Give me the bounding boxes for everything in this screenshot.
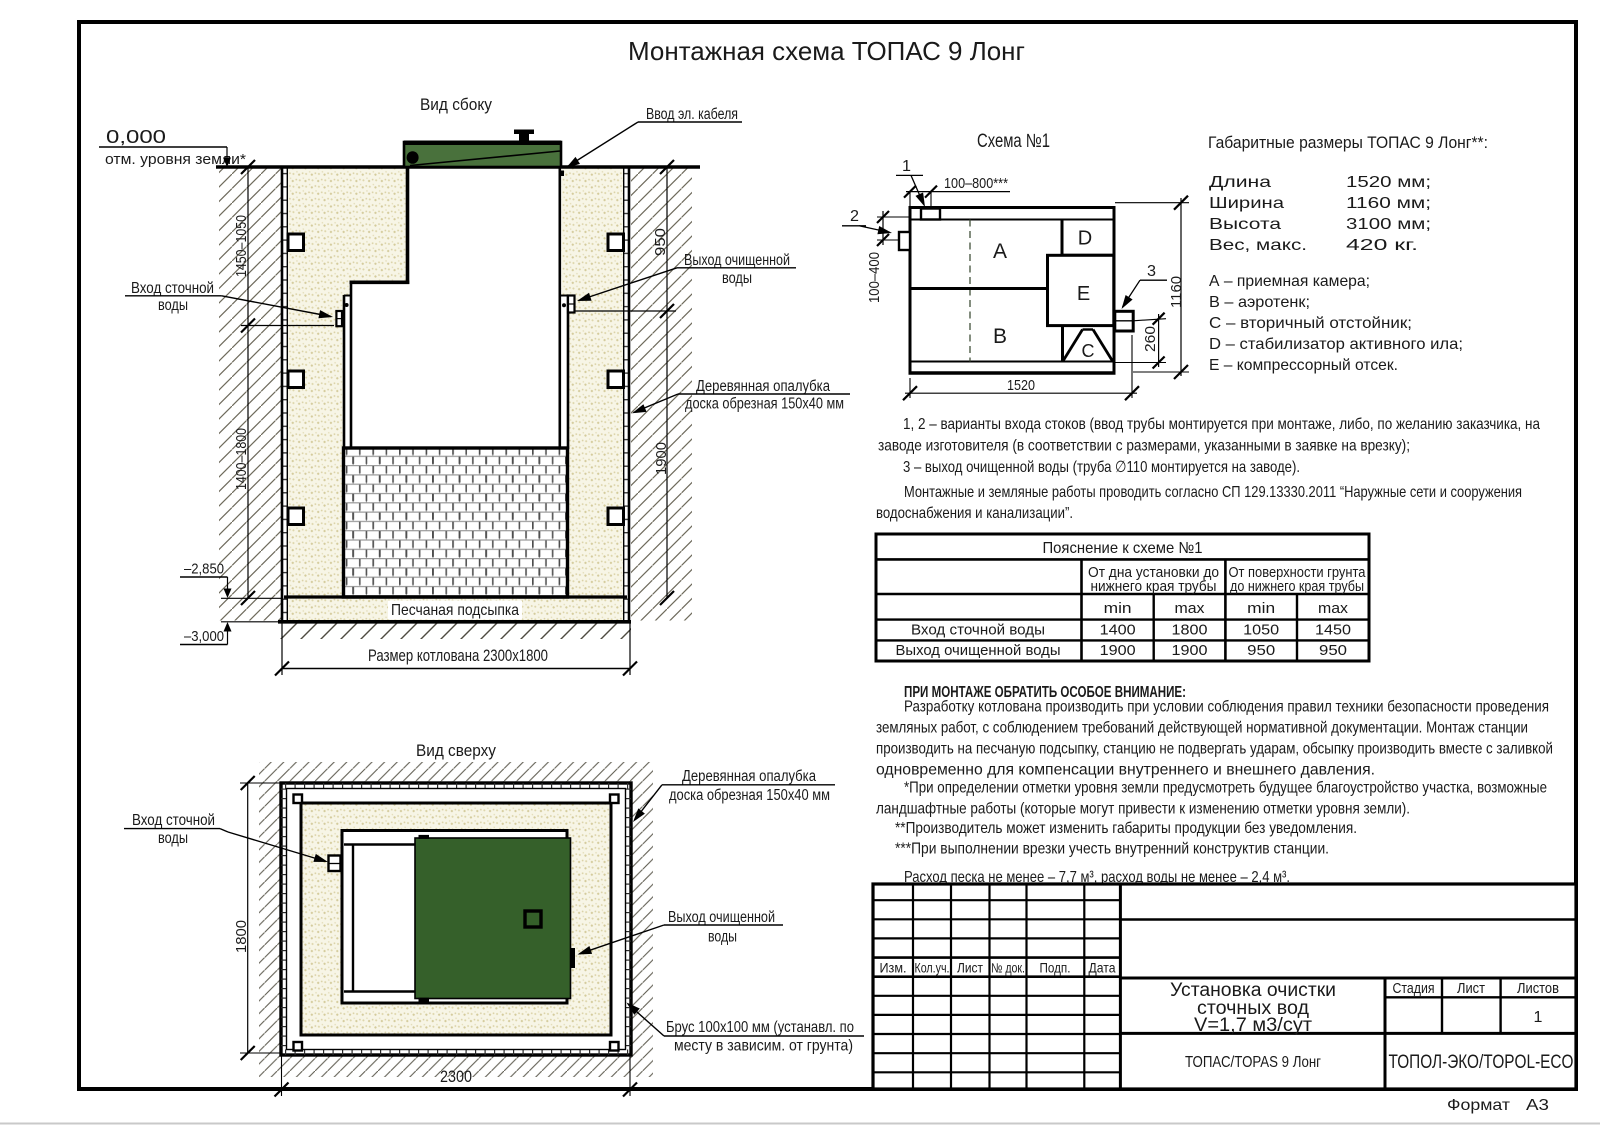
svg-text:Размер котлована 2300х1800: Размер котлована 2300х1800 (368, 646, 548, 665)
svg-text:Длина: Длина (1209, 174, 1271, 191)
svg-text:Стадия: Стадия (1393, 981, 1435, 997)
svg-text:Подп.: Подп. (1040, 961, 1071, 976)
svg-text:В – аэротенк;: В – аэротенк; (1209, 294, 1310, 311)
svg-text:1400–1800: 1400–1800 (233, 428, 250, 490)
svg-text:Выход очищенной: Выход очищенной (684, 252, 790, 269)
svg-text:ландшафтные работы (которые мо: ландшафтные работы (которые могут привес… (876, 801, 1410, 818)
svg-text:Ввод эл. кабеля: Ввод эл. кабеля (646, 106, 738, 123)
svg-text:Вес, макс.: Вес, макс. (1209, 237, 1307, 254)
svg-text:Вид сверху: Вид сверху (416, 741, 496, 760)
svg-text:заводе изготовителя (в соответ: заводе изготовителя (в соответствии с ра… (878, 438, 1410, 455)
svg-text:№ док.: № док. (991, 961, 1025, 976)
svg-text:Кол.уч.: Кол.уч. (915, 961, 950, 976)
svg-text:1520: 1520 (1007, 377, 1035, 394)
svg-text:1450–1050: 1450–1050 (233, 215, 250, 277)
svg-text:Выход очищенной: Выход очищенной (668, 909, 775, 926)
svg-text:D: D (1078, 228, 1092, 250)
svg-text:1520 мм;: 1520 мм; (1346, 174, 1431, 191)
svg-text:1900: 1900 (1100, 642, 1136, 659)
svg-text:доска обрезная 150х40 мм: доска обрезная 150х40 мм (685, 396, 844, 413)
svg-text:2: 2 (850, 208, 859, 225)
svg-text:воды: воды (158, 297, 188, 314)
svg-text:min: min (1104, 600, 1132, 617)
svg-text:Высота: Высота (1209, 216, 1281, 233)
svg-text:2300: 2300 (440, 1067, 472, 1086)
svg-text:Разработку котлована производи: Разработку котлована производить при усл… (904, 699, 1549, 716)
svg-text:Вид сбоку: Вид сбоку (420, 95, 492, 114)
svg-text:воды: воды (722, 270, 752, 287)
svg-text:А3: А3 (1526, 1097, 1549, 1114)
svg-text:Схема №1: Схема №1 (977, 131, 1050, 152)
svg-text:Вход сточной воды: Вход сточной воды (911, 622, 1045, 639)
svg-text:А – приемная камера;: А – приемная камера; (1209, 273, 1370, 290)
svg-text:max: max (1318, 600, 1349, 617)
svg-text:Пояснение к схеме №1: Пояснение к схеме №1 (1043, 540, 1203, 557)
svg-text:100–400: 100–400 (866, 252, 883, 303)
svg-text:1160: 1160 (1168, 276, 1185, 308)
svg-text:Песчаная подсыпка: Песчаная подсыпка (391, 602, 519, 619)
svg-text:950: 950 (1319, 642, 1347, 659)
svg-text:–2,850: –2,850 (184, 561, 224, 578)
svg-text:3100 мм;: 3100 мм; (1346, 216, 1431, 233)
svg-text:260: 260 (1142, 326, 1159, 352)
svg-text:Ширина: Ширина (1209, 195, 1284, 212)
svg-text:1450: 1450 (1315, 622, 1351, 639)
svg-text:Лист: Лист (1457, 981, 1485, 997)
svg-text:C: C (1082, 341, 1095, 361)
svg-text:нижнего края трубы: нижнего края трубы (1091, 578, 1217, 595)
svg-text:Выход очищенной воды: Выход очищенной воды (896, 642, 1061, 659)
svg-text:0,000: 0,000 (106, 127, 166, 147)
svg-text:до нижнего края трубы: до нижнего края трубы (1230, 578, 1364, 595)
svg-text:1050: 1050 (1243, 622, 1279, 639)
svg-text:1900: 1900 (1172, 642, 1208, 659)
svg-text:1400: 1400 (1100, 622, 1136, 639)
svg-text:1800: 1800 (1172, 622, 1208, 639)
svg-text:Деревянная опалубка: Деревянная опалубка (696, 378, 830, 395)
svg-text:Габаритные размеры ТОПАС 9 Лон: Габаритные размеры ТОПАС 9 Лонг**: (1208, 133, 1488, 152)
svg-text:–3,000: –3,000 (184, 628, 224, 645)
svg-text:воды: воды (158, 830, 188, 847)
svg-text:Формат: Формат (1447, 1097, 1511, 1114)
svg-text:1160 мм;: 1160 мм; (1346, 195, 1431, 212)
svg-text:1900: 1900 (653, 442, 670, 475)
svg-text:100–800***: 100–800*** (944, 175, 1008, 192)
svg-text:V=1,7 м3/сут: V=1,7 м3/сут (1194, 1015, 1312, 1036)
svg-text:1: 1 (1534, 1009, 1543, 1026)
svg-text:одновременно для компенсации в: одновременно для компенсации внутреннего… (876, 762, 1375, 779)
svg-text:*При определении отметки уровн: *При определении отметки уровня земли пр… (904, 780, 1547, 797)
svg-text:воды: воды (708, 929, 737, 946)
svg-text:Изм.: Изм. (880, 961, 907, 976)
svg-text:водоснабжения и канализации”.: водоснабжения и канализации”. (876, 505, 1073, 522)
svg-text:max: max (1175, 600, 1206, 617)
svg-text:1, 2 – варианты входа стоков: 1, 2 – варианты входа стоков (ввод трубы… (903, 416, 1540, 433)
svg-text:Вход сточной: Вход сточной (131, 280, 214, 297)
svg-text:Дата: Дата (1089, 961, 1116, 976)
svg-text:A: A (993, 240, 1007, 263)
svg-text:1: 1 (902, 158, 911, 175)
svg-text:Лист: Лист (957, 961, 983, 976)
svg-text:950: 950 (652, 228, 669, 256)
svg-text:Листов: Листов (1517, 981, 1559, 997)
svg-text:3 – выход очищенной воды (труб: 3 – выход очищенной воды (труба ∅110 мон… (903, 459, 1300, 476)
svg-text:Монтажная схема ТОПАС 9 Лонг: Монтажная схема ТОПАС 9 Лонг (628, 36, 1025, 66)
svg-text:производить на песчаную подсып: производить на песчаную подсыпку, станци… (876, 741, 1553, 758)
svg-text:Монтажные и земляные работы пр: Монтажные и земляные работы проводить со… (904, 484, 1522, 501)
svg-text:min: min (1247, 600, 1275, 617)
svg-text:земляных работ, с соблюдением: земляных работ, с соблюдением требований… (876, 720, 1528, 737)
svg-text:E: E (1077, 283, 1090, 305)
svg-text:1800: 1800 (233, 920, 250, 953)
svg-text:B: B (993, 325, 1007, 348)
svg-text:ТОПАС/TOPAS 9 Лонг: ТОПАС/TOPAS 9 Лонг (1185, 1054, 1321, 1071)
svg-text:доска обрезная 150х40 мм: доска обрезная 150х40 мм (669, 787, 830, 804)
svg-text:ТОПОЛ-ЭКО/TOPOL-ECO: ТОПОЛ-ЭКО/TOPOL-ECO (1389, 1052, 1574, 1073)
svg-text:Вход сточной: Вход сточной (132, 812, 215, 829)
svg-text:420 кг.: 420 кг. (1346, 237, 1418, 254)
svg-text:950: 950 (1247, 642, 1275, 659)
svg-text:Брус 100х100 мм (устанавл. по: Брус 100х100 мм (устанавл. по (666, 1019, 854, 1036)
svg-text:месту в зависим. от грунта): месту в зависим. от грунта) (674, 1038, 853, 1055)
svg-text:***При выполнении врезки учест: ***При выполнении врезки учесть внутренн… (895, 841, 1329, 858)
svg-text:3: 3 (1147, 263, 1156, 280)
svg-text:**Производитель может изменить: **Производитель может изменить габариты … (895, 820, 1357, 837)
svg-text:С – вторичный отстойник;: С – вторичный отстойник; (1209, 315, 1412, 332)
svg-text:Е – компрессорный отсек.: Е – компрессорный отсек. (1209, 357, 1398, 374)
svg-text:Деревянная опалубка: Деревянная опалубка (682, 768, 816, 785)
svg-text:D – стабилизатор активного ила: D – стабилизатор активного ила; (1209, 336, 1463, 353)
